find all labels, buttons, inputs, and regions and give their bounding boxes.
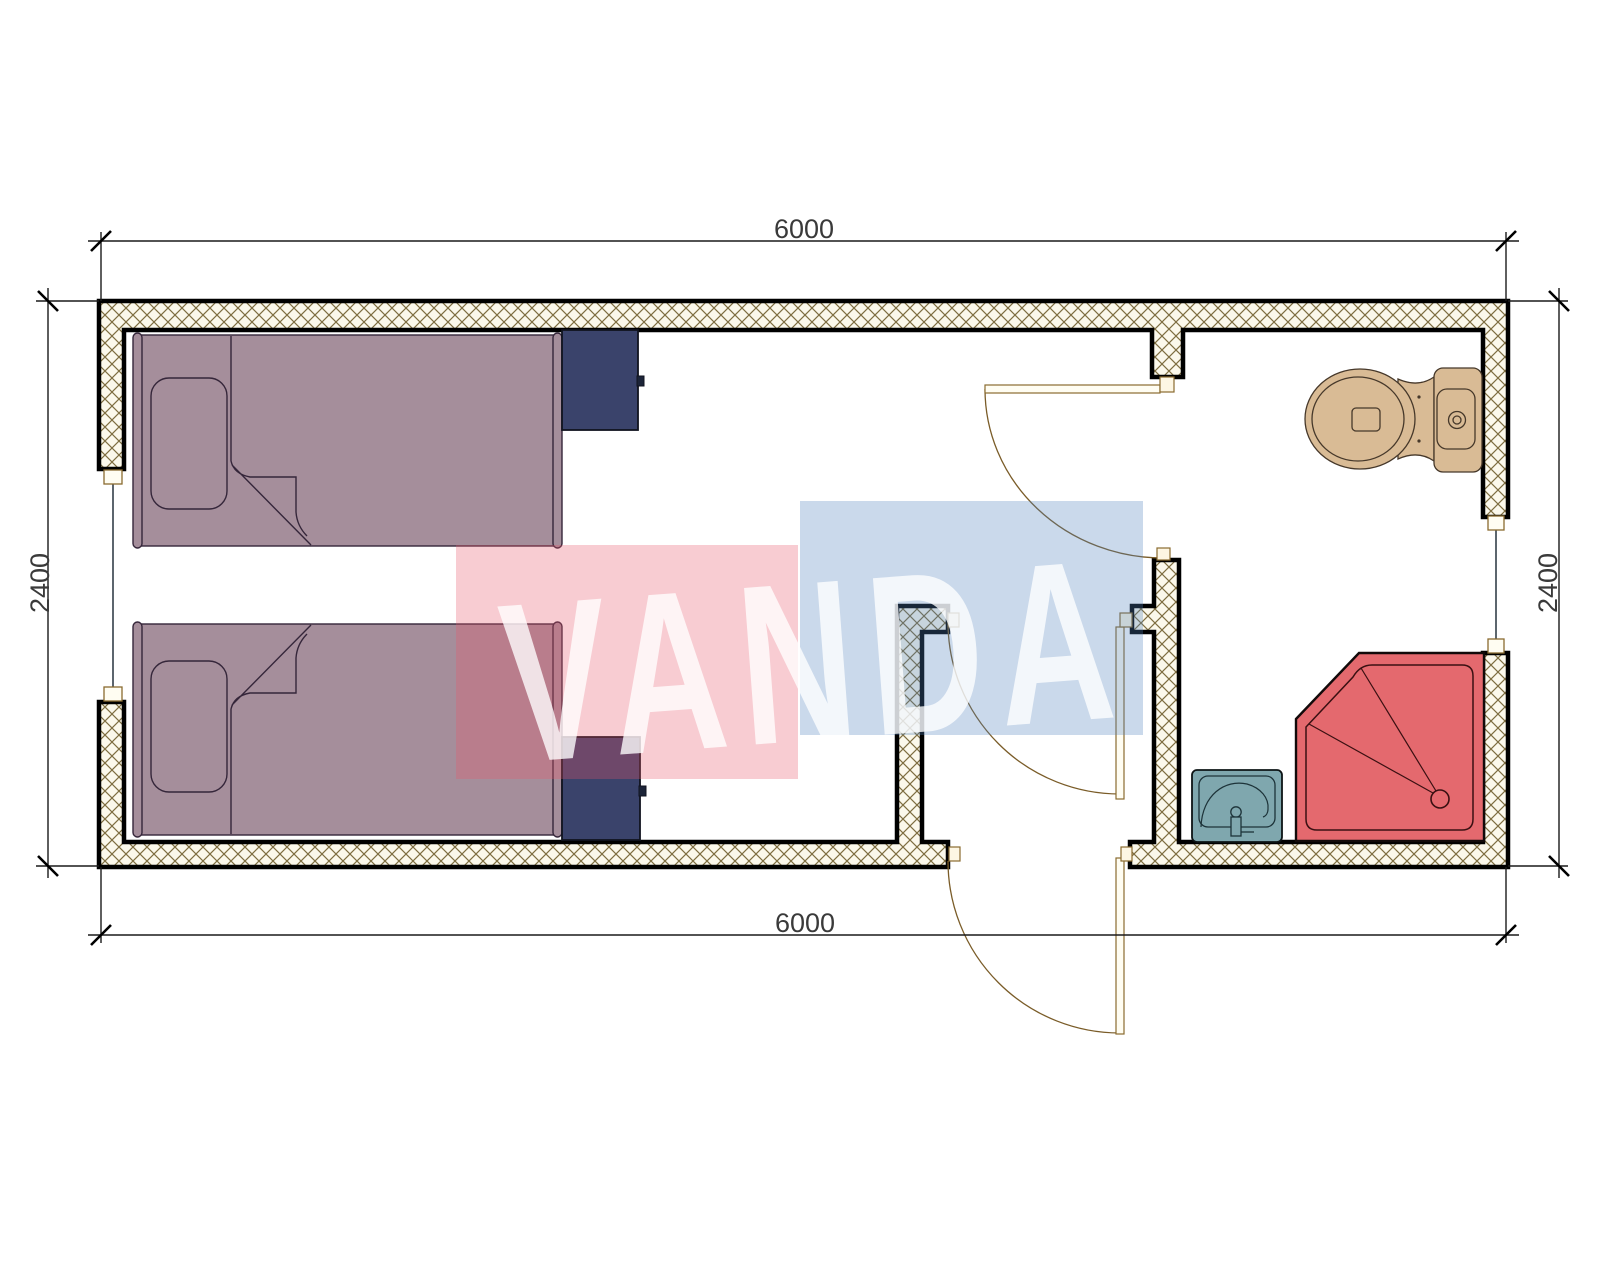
svg-text:6000: 6000 — [774, 214, 834, 244]
svg-text:2400: 2400 — [1533, 553, 1563, 613]
svg-text:VANDA: VANDA — [493, 510, 1136, 811]
svg-text:2400: 2400 — [25, 553, 55, 613]
svg-text:6000: 6000 — [775, 908, 835, 938]
